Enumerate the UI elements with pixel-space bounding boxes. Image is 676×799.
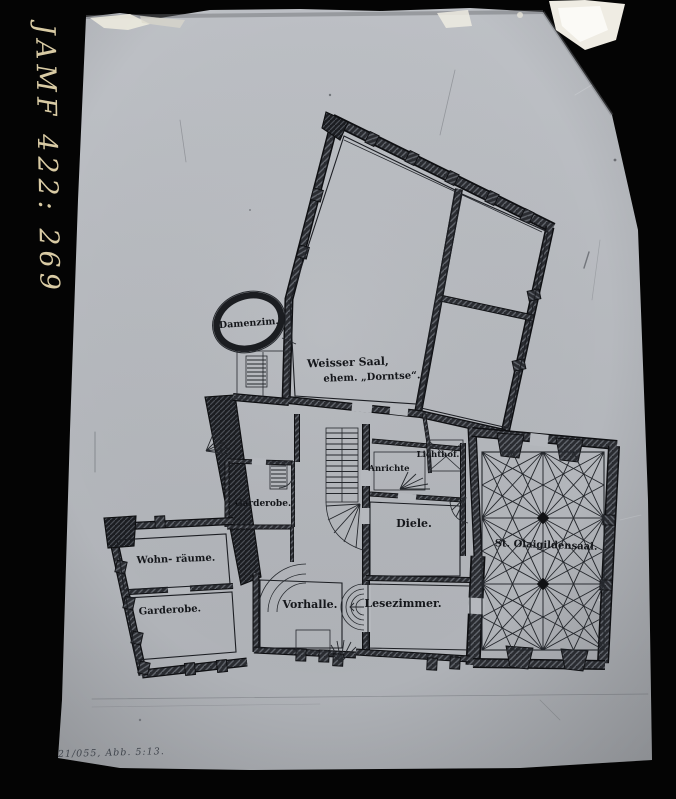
photographed-glass-plate: Damenzim. Weisser Saal, ehem. „Dorntse“.… [0, 0, 676, 799]
room-label-vorhalle: Vorhalle. [282, 598, 338, 611]
plate-canvas: Damenzim. Weisser Saal, ehem. „Dorntse“.… [0, 0, 676, 799]
room-label-lichthof: Lichthof. [417, 450, 460, 460]
room-label-garderobe-mid: Garderobe. [235, 499, 291, 509]
room-label-anrichte: Anrichte [367, 464, 410, 474]
handwritten-plate-id: JAMF 422: 269 [29, 19, 65, 296]
room-label-lesezimmer: Lesezimmer. [364, 597, 441, 610]
room-label-diele: Diele. [396, 517, 432, 530]
